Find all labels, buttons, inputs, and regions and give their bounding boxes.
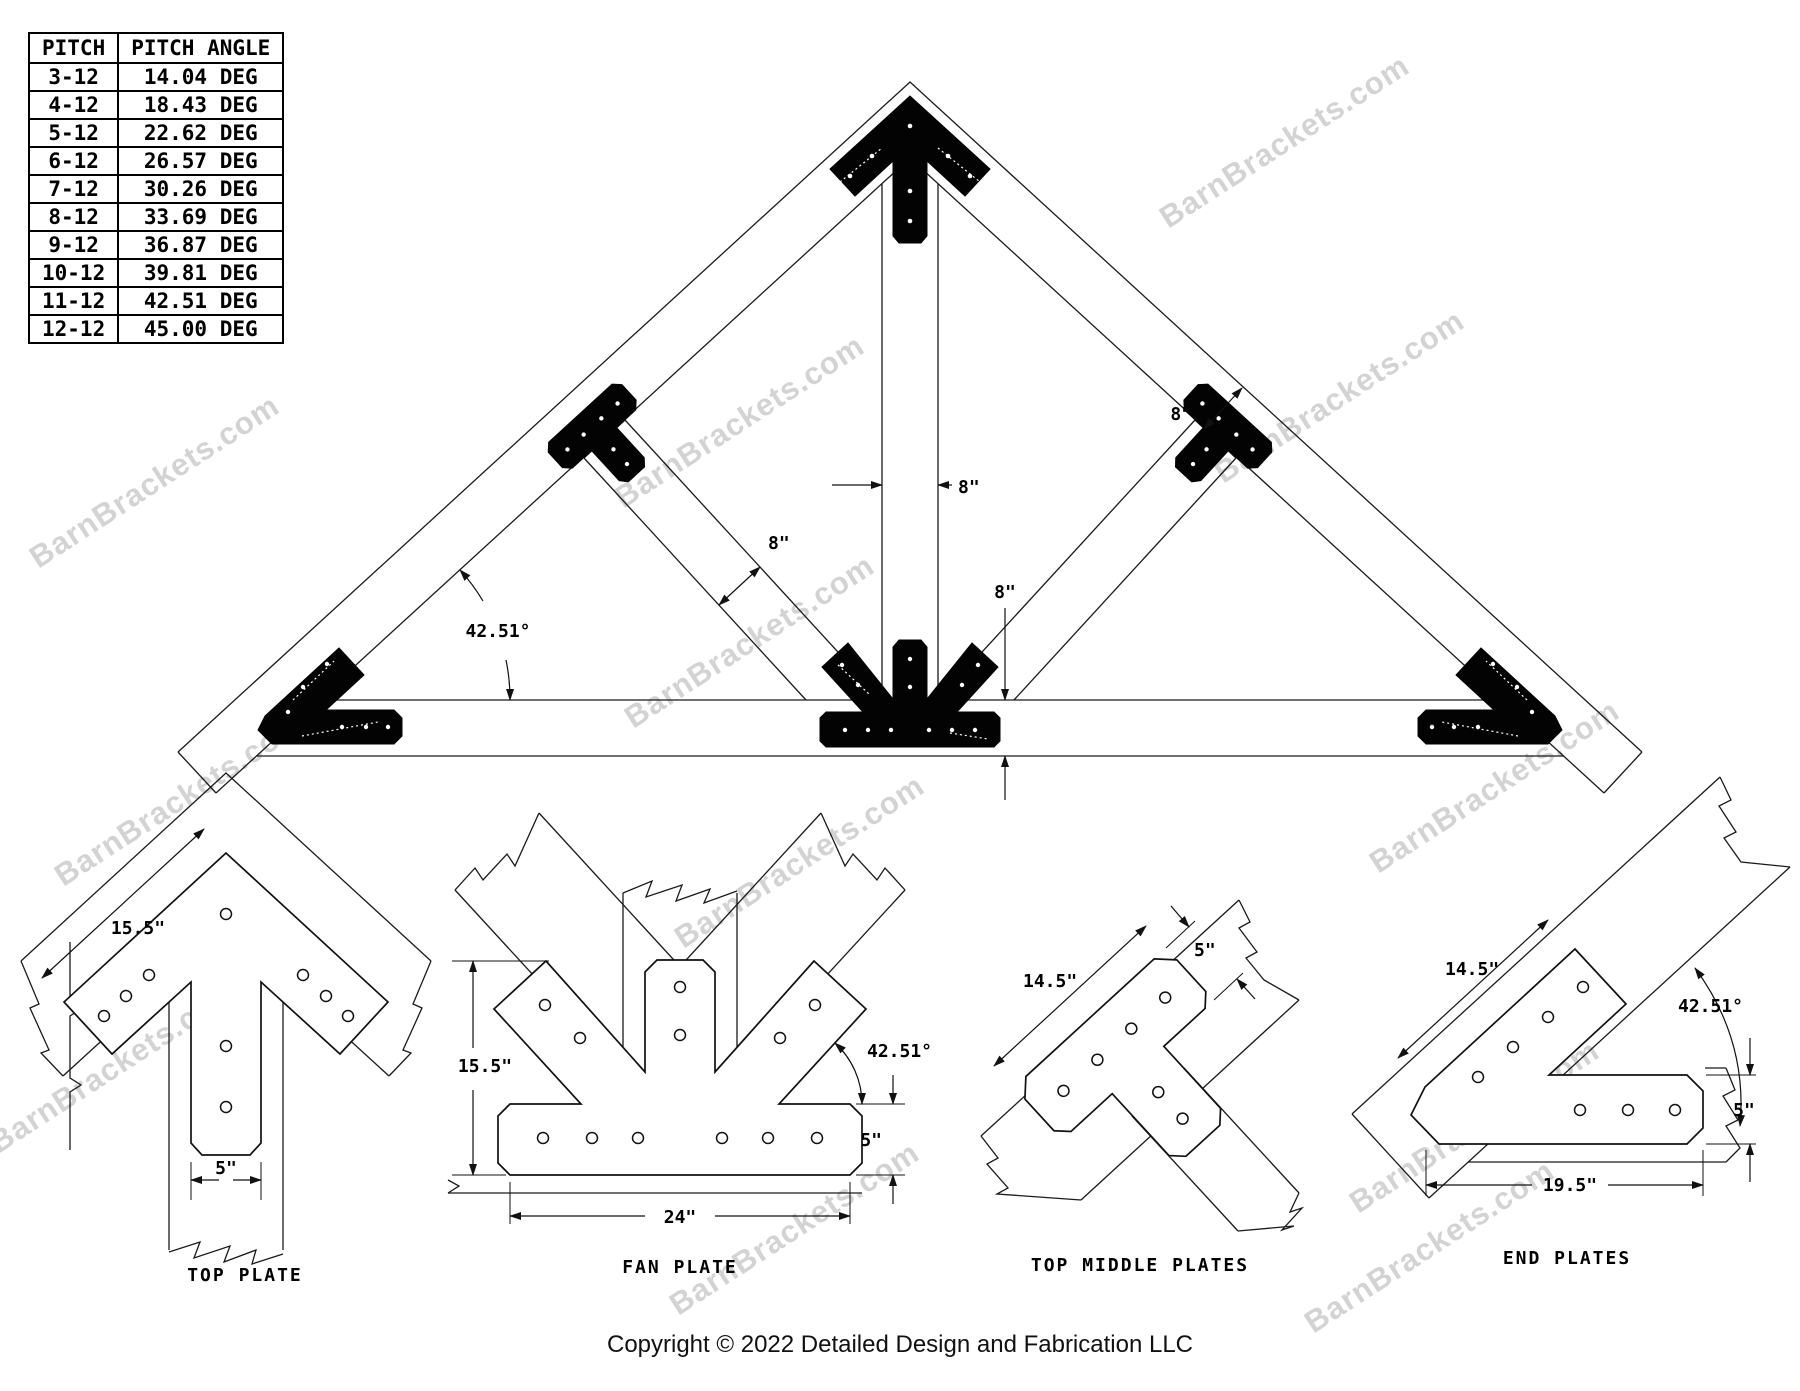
pitch-table-cell: 33.69 DEG: [118, 203, 283, 231]
pitch-table-cell: 42.51 DEG: [118, 287, 283, 315]
dim-pitch-angle: 42.51°: [460, 570, 531, 700]
pitch-table-row: 4-1218.43 DEG: [29, 91, 283, 119]
dim-text-end-width: 5": [1733, 1100, 1755, 1121]
pitch-table-cell: 6-12: [29, 147, 118, 175]
pitch-table-row: 10-1239.81 DEG: [29, 259, 283, 287]
pitch-table-cell: 45.00 DEG: [118, 315, 283, 343]
dim-text-end-angle: 42.51°: [1678, 996, 1743, 1017]
left-end-plate: [258, 648, 402, 744]
pitch-table-cell: 39.81 DEG: [118, 259, 283, 287]
dim-text-fan-angle: 42.51°: [867, 1041, 932, 1062]
pitch-table-cell: 5-12: [29, 119, 118, 147]
pitch-table-row: 5-1222.62 DEG: [29, 119, 283, 147]
dim-bottom-chord-depth: 8": [994, 582, 1016, 800]
pitch-table-row: 7-1230.26 DEG: [29, 175, 283, 203]
dim-text-end-length: 19.5": [1543, 1175, 1597, 1196]
pitch-table-cell: 30.26 DEG: [118, 175, 283, 203]
pitch-table-cell: 12-12: [29, 315, 118, 343]
pitch-angle-header: PITCH ANGLE: [118, 33, 283, 63]
pitch-table-cell: 22.62 DEG: [118, 119, 283, 147]
watermark-text: BarnBrackets.com: [23, 388, 285, 575]
dim-text-chord: 8": [1170, 404, 1192, 425]
pitch-table-row: 6-1226.57 DEG: [29, 147, 283, 175]
watermark-text: BarnBrackets.com: [608, 328, 870, 515]
dim-text-top-plate-leg: 5": [215, 1158, 237, 1179]
pitch-table-row: 8-1233.69 DEG: [29, 203, 283, 231]
pitch-table-cell: 8-12: [29, 203, 118, 231]
pitch-table-cell: 36.87 DEG: [118, 231, 283, 259]
pitch-table: PITCH PITCH ANGLE 3-1214.04 DEG4-1218.43…: [28, 32, 284, 344]
watermark-text: BarnBrackets.com: [1153, 48, 1415, 235]
dim-end-length: 19.5": [1426, 1150, 1703, 1196]
drawing-sheet: BarnBrackets.com BarnBrackets.com BarnBr…: [0, 0, 1800, 1391]
pitch-table-cell: 3-12: [29, 63, 118, 91]
pitch-table-cell: 18.43 DEG: [118, 91, 283, 119]
right-end-plate: [1418, 648, 1562, 744]
pitch-table-header-row: PITCH PITCH ANGLE: [29, 33, 283, 63]
dim-text-top-middle-bar: 14.5": [1023, 971, 1077, 992]
right-t-plate: [1147, 379, 1277, 508]
pitch-header: PITCH: [29, 33, 118, 63]
fan-plate-shape: [494, 960, 866, 1175]
peak-plate: [830, 96, 990, 243]
dim-text-strut: 8": [768, 533, 790, 554]
pitch-table-row: 11-1242.51 DEG: [29, 287, 283, 315]
dim-text-end-arm: 14.5": [1445, 959, 1499, 980]
pitch-table-cell: 26.57 DEG: [118, 147, 283, 175]
pitch-table-cell: 14.04 DEG: [118, 63, 283, 91]
label-top-middle-plates: TOP MIDDLE PLATES: [1031, 1255, 1249, 1276]
dim-text-fan-width: 5": [860, 1130, 882, 1151]
dim-left-strut-width: 8": [719, 533, 790, 605]
dim-king-post-width: 8": [832, 477, 980, 498]
pitch-table-row: 3-1214.04 DEG: [29, 63, 283, 91]
truss-diagram: 8" 8" 8" 8" 42.51°: [178, 82, 1642, 800]
dim-text-top-plate-edge: 15.5": [111, 918, 165, 939]
pitch-table-row: 9-1236.87 DEG: [29, 231, 283, 259]
dim-text-king-post: 8": [958, 477, 980, 498]
pitch-table-cell: 10-12: [29, 259, 118, 287]
pitch-table-cell: 9-12: [29, 231, 118, 259]
copyright-text: Copyright © 2022 Detailed Design and Fab…: [0, 1331, 1800, 1359]
detail-fan-plate: 15.5" 24" 5" 42.51° FAN PLATE: [448, 813, 932, 1278]
label-fan-plate: FAN PLATE: [622, 1257, 738, 1278]
label-end-plates: END PLATES: [1503, 1248, 1631, 1269]
pitch-table-cell: 11-12: [29, 287, 118, 315]
dim-text-fan-height: 15.5": [458, 1056, 512, 1077]
top-plate-shape: [64, 853, 388, 1155]
dim-fan-angle: 42.51°: [835, 1041, 932, 1104]
dim-text-angle: 42.51°: [465, 621, 530, 642]
watermark-text: BarnBrackets.com: [1298, 1153, 1560, 1340]
dim-top-plate-leg: 5": [191, 1158, 261, 1200]
dim-text-top-middle-width: 5": [1194, 940, 1216, 961]
fan-plate-bracket: [820, 640, 1000, 747]
pitch-table-cell: 7-12: [29, 175, 118, 203]
pitch-table-cell: 4-12: [29, 91, 118, 119]
pitch-table-body: 3-1214.04 DEG4-1218.43 DEG5-1222.62 DEG6…: [29, 63, 283, 343]
dim-text-fan-length: 24": [664, 1207, 697, 1228]
label-top-plate: TOP PLATE: [187, 1265, 303, 1286]
detail-top-middle-plates: 14.5" 5" TOP MIDDLE PLATES: [981, 900, 1302, 1276]
watermark-text: BarnBrackets.com: [668, 768, 930, 955]
watermark-text: BarnBrackets.com: [618, 548, 880, 735]
pitch-table-row: 12-1245.00 DEG: [29, 315, 283, 343]
dim-text-bottom-chord: 8": [994, 582, 1016, 603]
